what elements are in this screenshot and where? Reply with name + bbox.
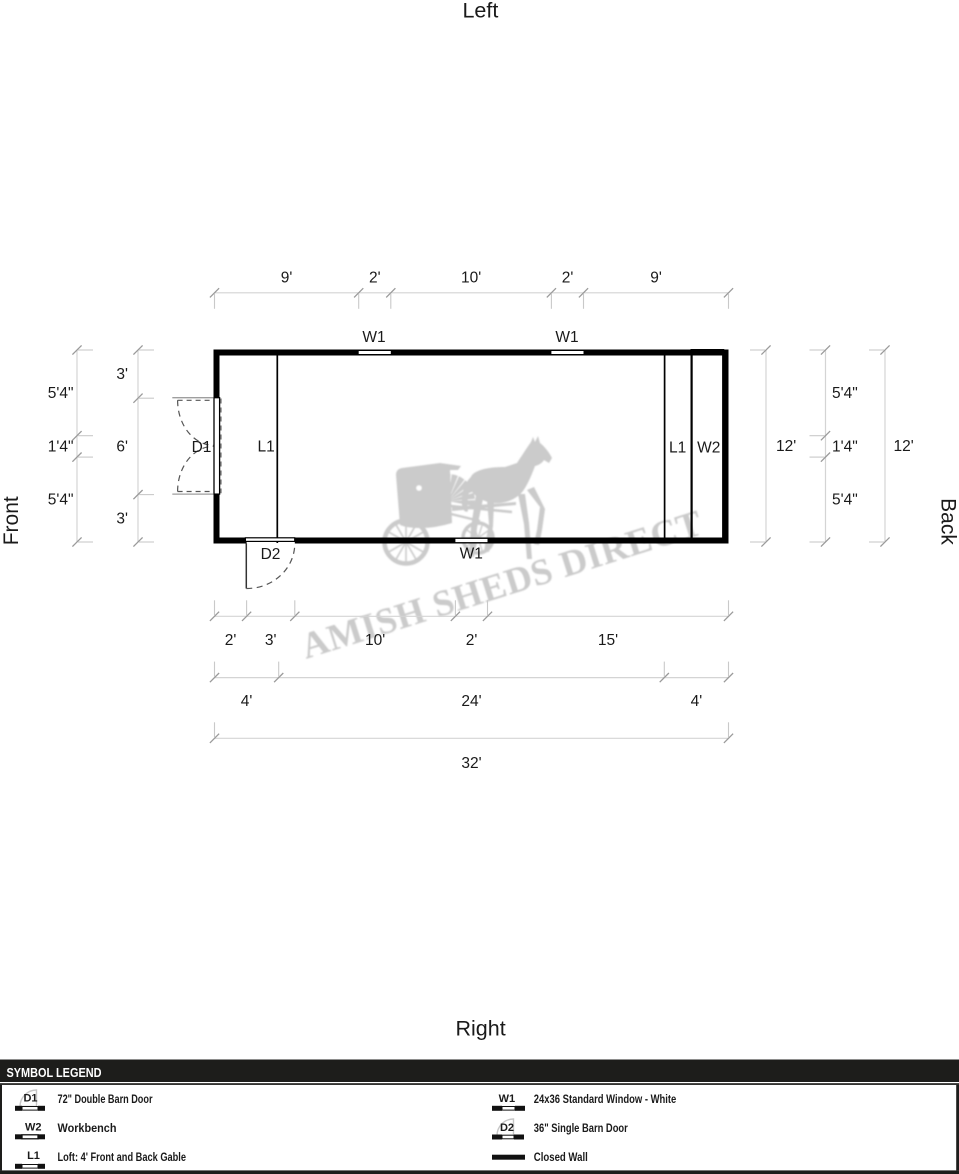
svg-text:24': 24' [461,693,481,710]
svg-text:24x36 Standard Window - White: 24x36 Standard Window - White [534,1092,677,1106]
svg-text:D1: D1 [23,1093,37,1105]
svg-text:36" Single Barn Door: 36" Single Barn Door [534,1121,628,1135]
svg-text:W2: W2 [25,1121,42,1133]
svg-text:Loft: 4' Front and Back Gable: Loft: 4' Front and Back Gable [58,1150,187,1164]
svg-text:9': 9' [650,270,662,287]
svg-text:W1: W1 [499,1093,516,1105]
svg-text:W1: W1 [362,329,385,346]
svg-text:SYMBOL LEGEND: SYMBOL LEGEND [7,1066,102,1080]
svg-text:D2: D2 [261,546,281,563]
svg-text:10': 10' [365,632,385,649]
svg-text:2': 2' [225,632,237,649]
svg-text:72" Double Barn Door: 72" Double Barn Door [58,1092,153,1106]
svg-text:12': 12' [776,438,796,455]
svg-text:15': 15' [598,632,618,649]
svg-text:5'4": 5'4" [832,385,858,402]
svg-text:D2: D2 [500,1122,514,1134]
svg-text:L1: L1 [258,439,275,456]
svg-text:3': 3' [265,632,277,649]
svg-text:3': 3' [116,366,128,383]
svg-text:Closed Wall: Closed Wall [534,1150,588,1164]
svg-text:12': 12' [894,438,914,455]
svg-text:32': 32' [461,755,481,772]
svg-text:10': 10' [461,270,481,287]
svg-text:4': 4' [241,693,253,710]
svg-text:Front: Front [0,496,23,545]
svg-text:2': 2' [369,270,381,287]
svg-text:9': 9' [281,270,293,287]
svg-text:1'4": 1'4" [832,438,858,455]
svg-text:W1: W1 [460,546,483,563]
svg-text:2': 2' [466,632,478,649]
svg-text:5'4": 5'4" [48,492,74,509]
svg-text:W1: W1 [555,329,578,346]
svg-text:Right: Right [455,1016,505,1040]
svg-text:6': 6' [116,438,128,455]
svg-text:Workbench: Workbench [58,1121,117,1135]
svg-text:D1: D1 [192,439,212,456]
svg-text:3': 3' [116,510,128,527]
svg-text:1'4": 1'4" [48,438,74,455]
svg-text:W2: W2 [697,439,720,456]
svg-text:L1: L1 [27,1150,40,1162]
svg-text:5'4": 5'4" [48,385,74,402]
svg-text:Left: Left [462,0,498,22]
svg-text:4': 4' [691,693,703,710]
svg-text:L1: L1 [669,439,686,456]
svg-text:Back: Back [937,498,959,545]
svg-text:2': 2' [562,270,574,287]
svg-text:5'4": 5'4" [832,492,858,509]
